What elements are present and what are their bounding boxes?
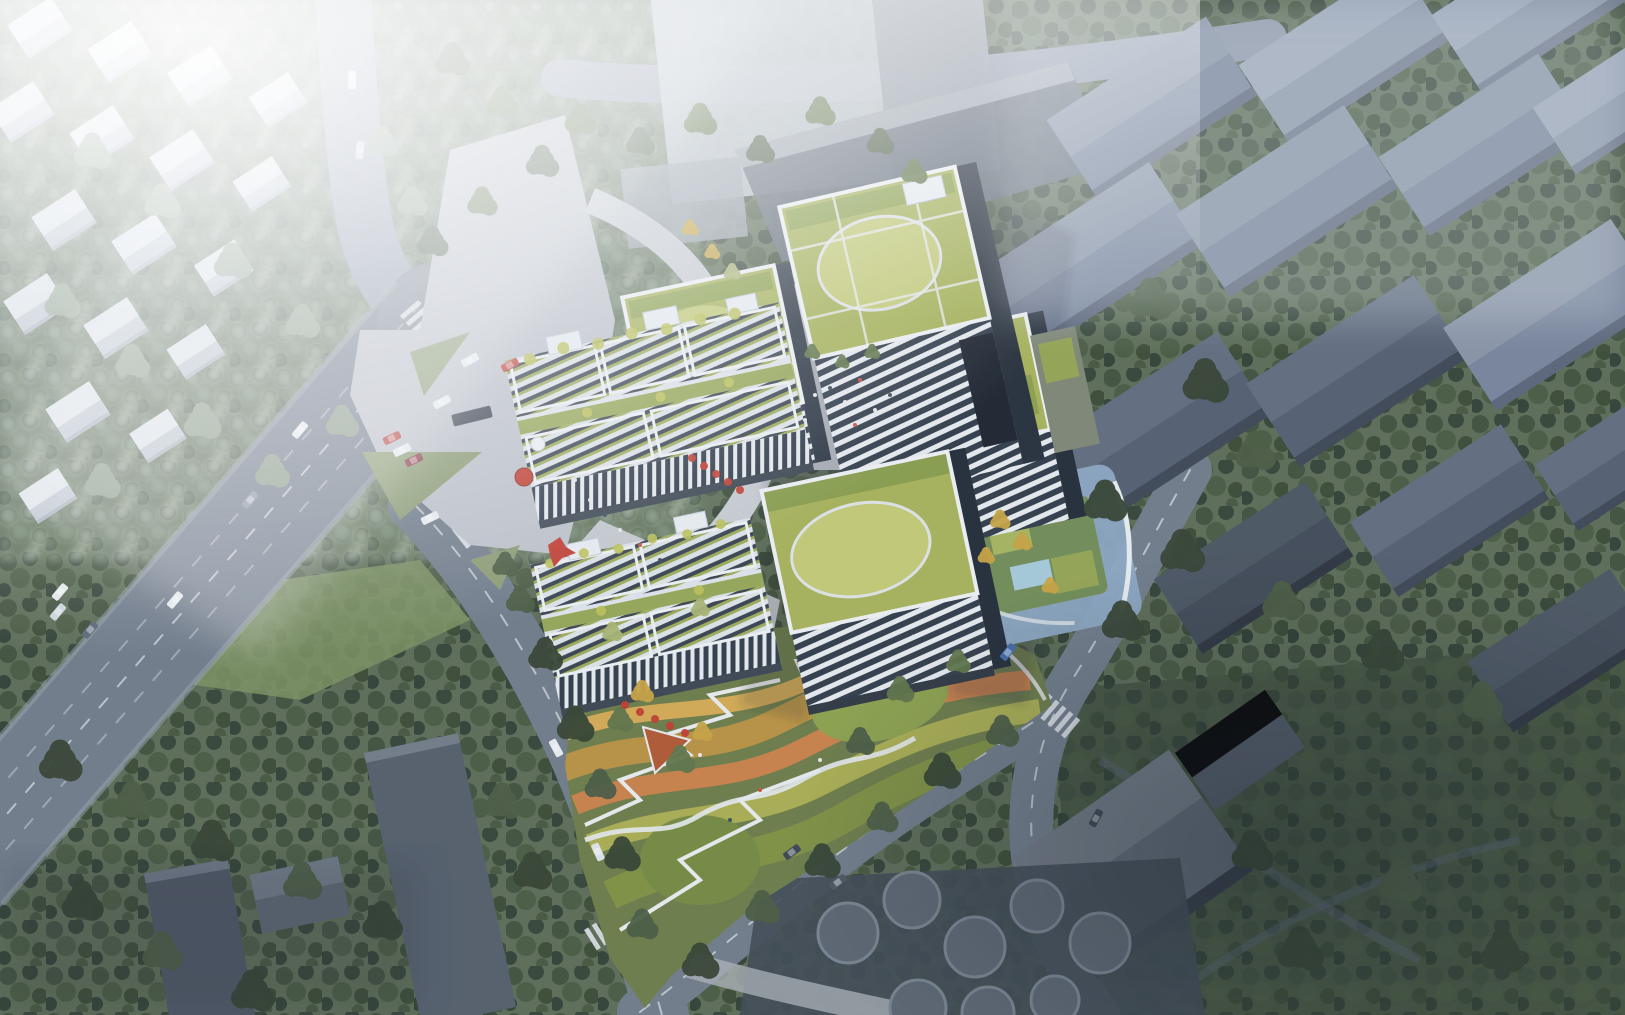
rendering-canvas — [0, 0, 1625, 1015]
haze-far-right — [1000, 0, 1625, 320]
corner-shade — [0, 860, 420, 1015]
atmosphere-layer — [0, 0, 1625, 1015]
aerial-rendering — [0, 0, 1625, 1015]
vignette-dark — [790, 550, 1625, 1015]
